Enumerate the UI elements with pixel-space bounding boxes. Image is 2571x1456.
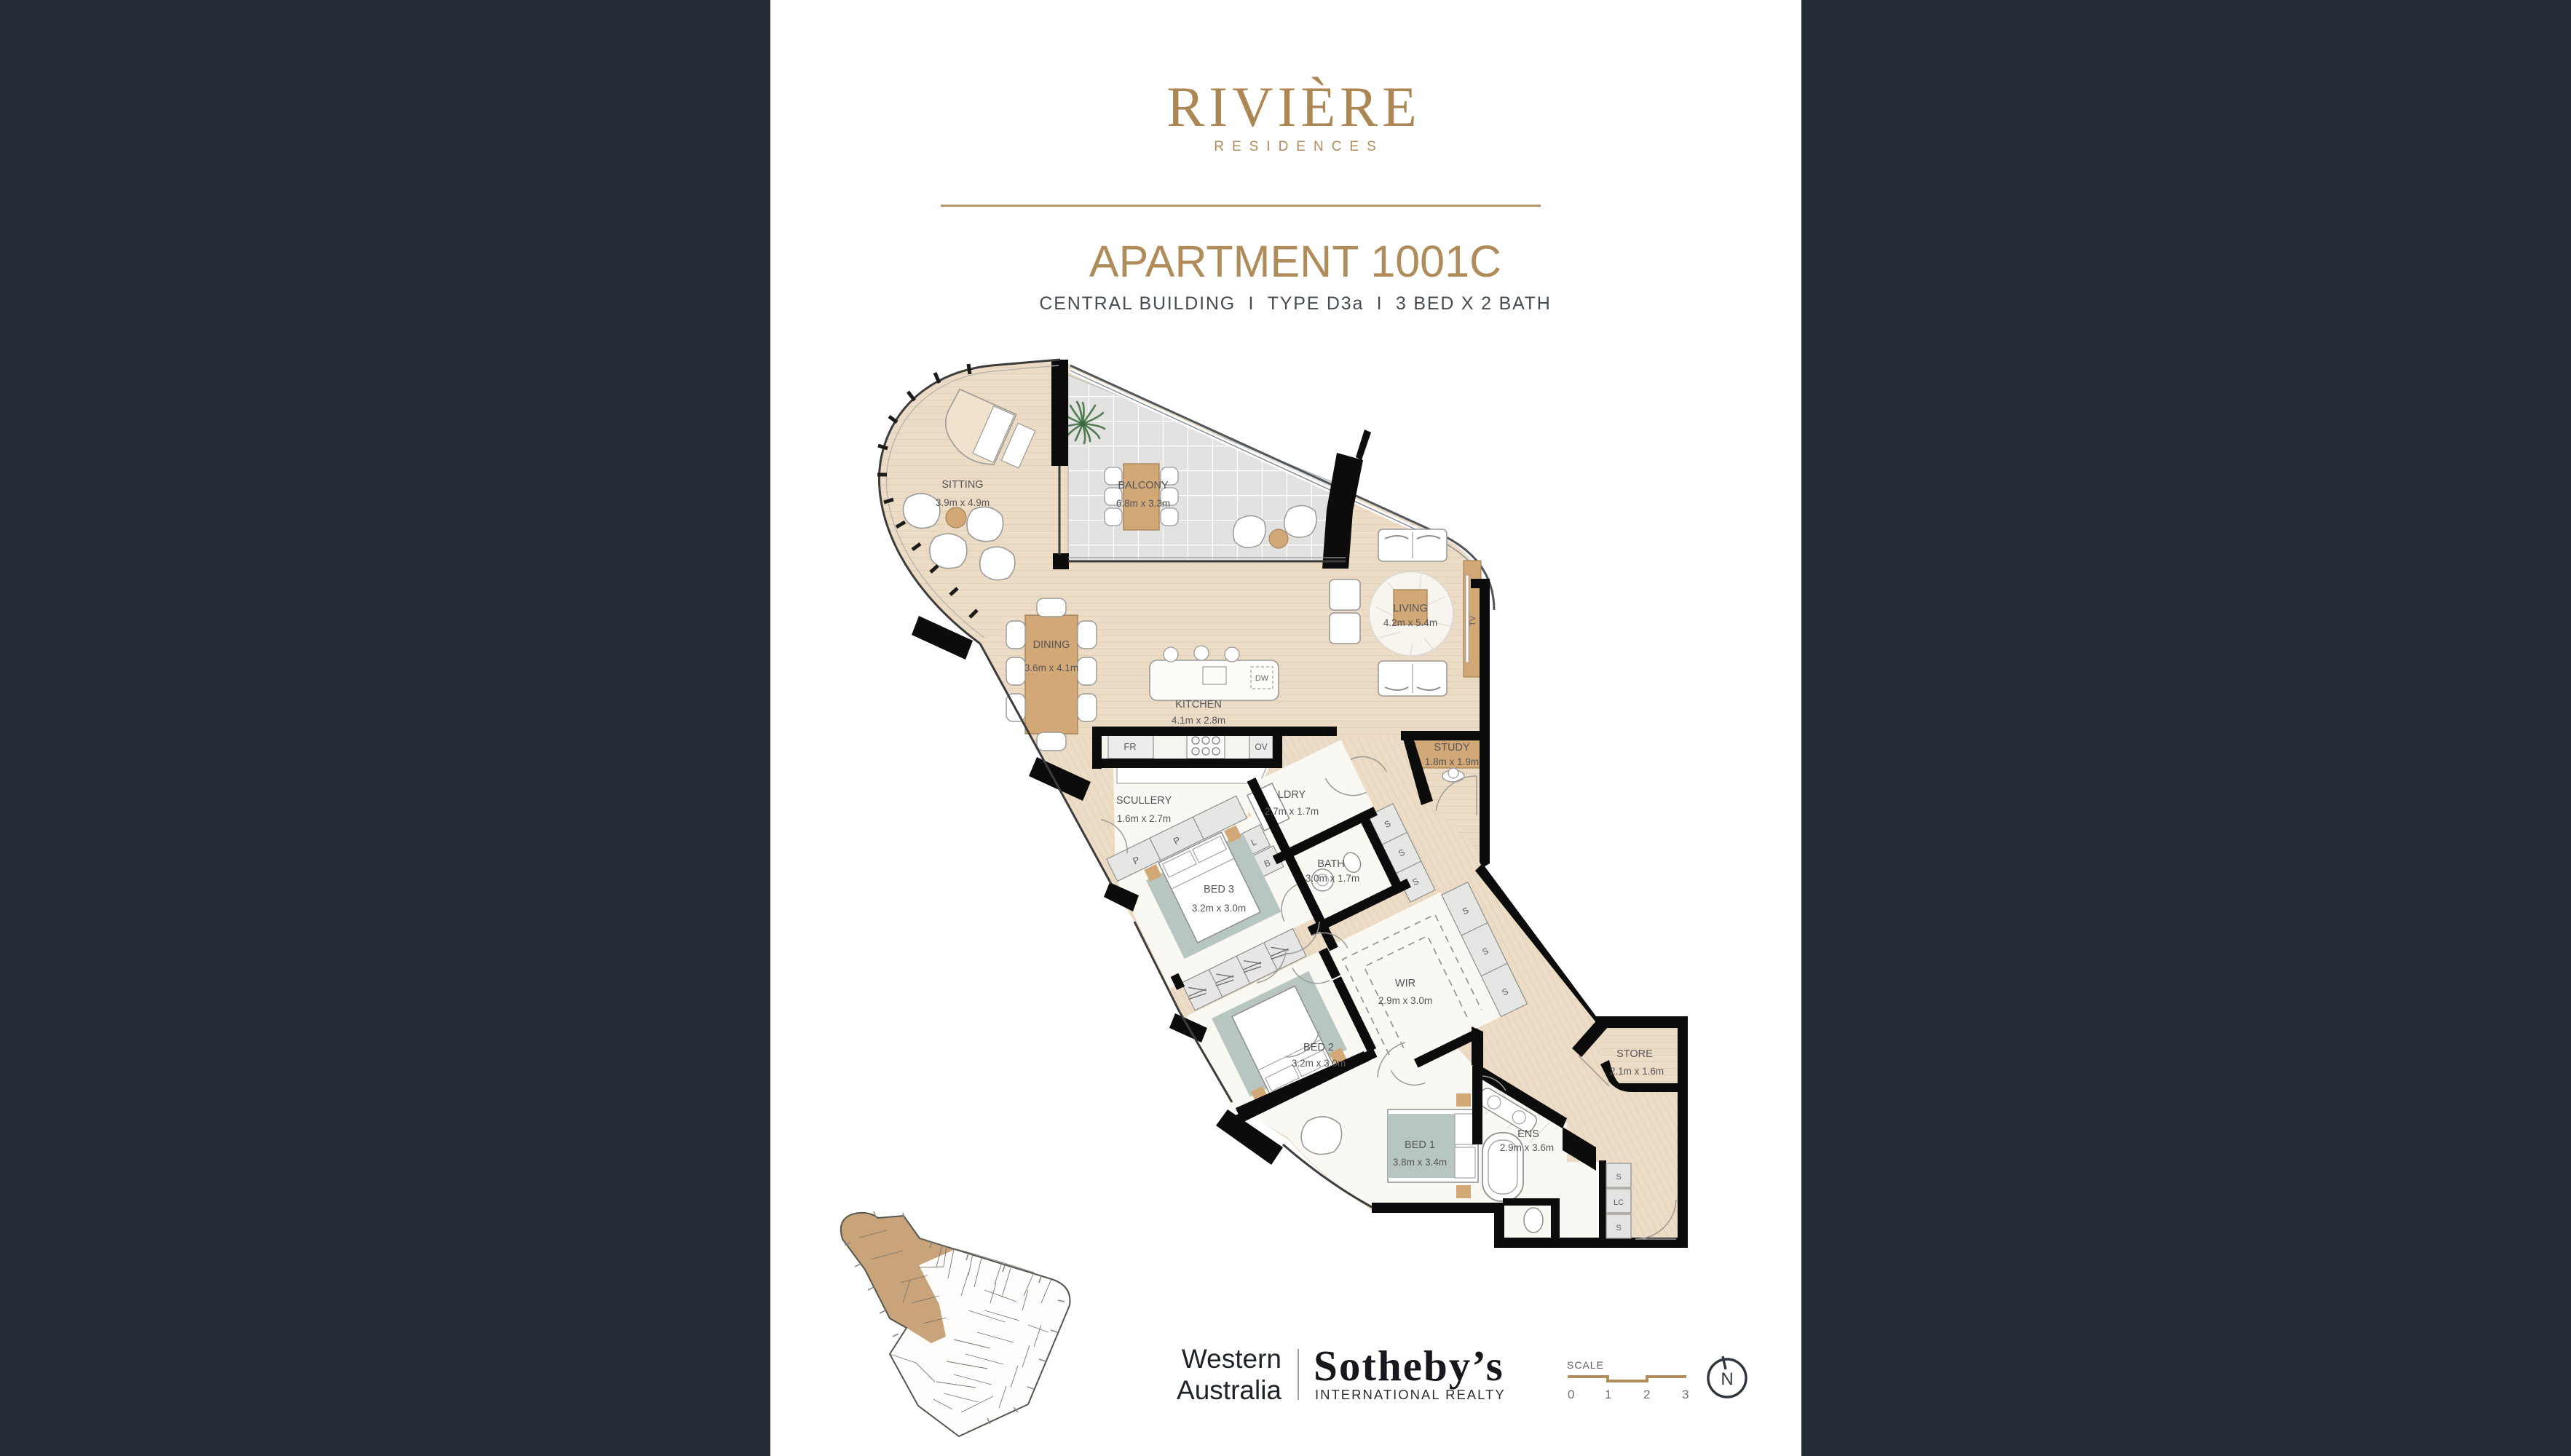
svg-text:2.7m x 1.7m: 2.7m x 1.7m: [1265, 806, 1319, 817]
svg-text:STUDY: STUDY: [1434, 742, 1469, 753]
svg-text:FR: FR: [1123, 741, 1136, 752]
svg-text:2.9m x 3.6m: 2.9m x 3.6m: [1500, 1142, 1554, 1153]
svg-text:2.9m x 3.0m: 2.9m x 3.0m: [1378, 995, 1432, 1006]
svg-text:KITCHEN: KITCHEN: [1175, 699, 1222, 711]
svg-text:BED 3: BED 3: [1204, 884, 1234, 895]
svg-text:2.1m x 1.6m: 2.1m x 1.6m: [1610, 1066, 1664, 1077]
svg-text:S: S: [1616, 1173, 1621, 1182]
svg-text:OV: OV: [1255, 742, 1267, 752]
svg-text:SCULLERY: SCULLERY: [1116, 795, 1172, 807]
svg-text:3.6m x 4.1m: 3.6m x 4.1m: [1024, 662, 1078, 673]
svg-text:TV: TV: [1469, 615, 1477, 626]
svg-text:3.8m x 3.4m: 3.8m x 3.4m: [1393, 1157, 1447, 1168]
svg-text:SITTING: SITTING: [941, 479, 983, 491]
svg-text:BALCONY: BALCONY: [1118, 480, 1169, 491]
svg-text:3.0m x 1.7m: 3.0m x 1.7m: [1306, 873, 1359, 884]
svg-text:DW: DW: [1255, 674, 1269, 683]
svg-text:1: 1: [1605, 1388, 1611, 1401]
svg-text:3.9m x 4.9m: 3.9m x 4.9m: [936, 497, 990, 508]
svg-text:1.6m x 2.7m: 1.6m x 2.7m: [1117, 813, 1171, 824]
svg-text:STORE: STORE: [1616, 1048, 1653, 1060]
svg-text:6.8m x 3.3m: 6.8m x 3.3m: [1116, 498, 1170, 509]
svg-text:LIVING: LIVING: [1393, 603, 1428, 614]
svg-text:4.1m x 2.8m: 4.1m x 2.8m: [1172, 715, 1225, 726]
svg-text:LC: LC: [1614, 1198, 1624, 1207]
svg-text:S: S: [1616, 1224, 1621, 1233]
svg-text:BED 2: BED 2: [1303, 1042, 1334, 1053]
svg-text:3.2m x 3.0m: 3.2m x 3.0m: [1192, 903, 1246, 914]
svg-text:DINING: DINING: [1033, 639, 1070, 651]
svg-text:3: 3: [1682, 1388, 1689, 1401]
svg-text:4.2m x 5.4m: 4.2m x 5.4m: [1383, 617, 1437, 628]
svg-text:0: 0: [1568, 1388, 1574, 1401]
svg-text:BED 1: BED 1: [1405, 1139, 1435, 1151]
svg-text:BATH: BATH: [1317, 858, 1345, 870]
svg-text:1.8m x 1.9m: 1.8m x 1.9m: [1425, 756, 1479, 767]
svg-text:2: 2: [1643, 1388, 1650, 1401]
svg-text:3.2m x 3.0m: 3.2m x 3.0m: [1292, 1058, 1346, 1069]
svg-text:LDRY: LDRY: [1278, 789, 1306, 801]
svg-text:N: N: [1721, 1369, 1733, 1389]
svg-text:ENS: ENS: [1517, 1128, 1539, 1140]
svg-text:WIR: WIR: [1395, 978, 1415, 989]
